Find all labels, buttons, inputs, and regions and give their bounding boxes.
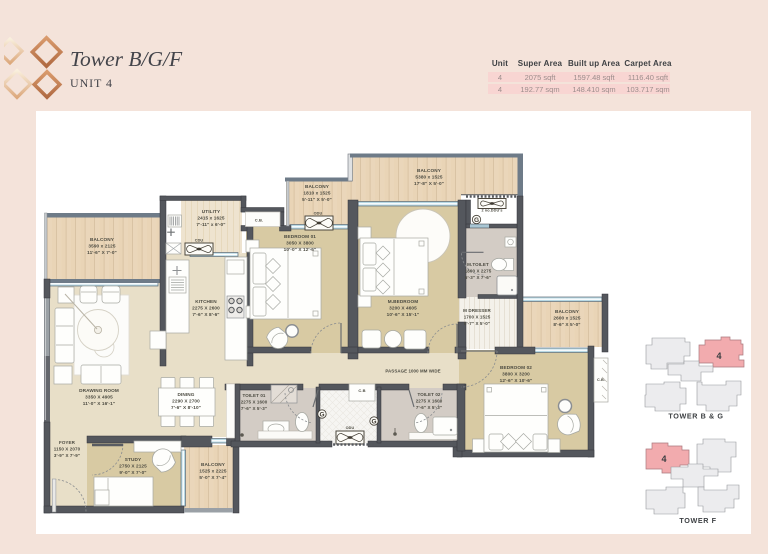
svg-text:ODU: ODU — [346, 426, 355, 430]
svg-text:BEDROOM 013050 X 380010'-0" X: BEDROOM 013050 X 380010'-0" X 12'-6" — [284, 234, 317, 252]
svg-text:CDU: CDU — [195, 239, 204, 243]
svg-text:G: G — [371, 418, 376, 425]
svg-text:TOILET 012275 X 16007'-6" X 5': TOILET 012275 X 16007'-6" X 5'-3" — [241, 393, 268, 411]
svg-text:PASSAGE 1000 MM WIDE: PASSAGE 1000 MM WIDE — [385, 369, 440, 374]
svg-text:BALCONY2600 x 15258'-6" X 5'-0: BALCONY2600 x 15258'-6" X 5'-0" — [553, 309, 581, 327]
svg-text:BALCONY1810 x 15255'-11" X 5'-: BALCONY1810 x 15255'-11" X 5'-0" — [302, 184, 332, 202]
svg-text:TOILET 022275 X 16007'-6" X 5': TOILET 022275 X 16007'-6" X 5'-3" — [416, 392, 443, 410]
svg-text:G: G — [319, 411, 324, 418]
svg-text:BALCONY3590 x 212511'-6" X 7'-: BALCONY3590 x 212511'-6" X 7'-0" — [87, 237, 117, 255]
svg-text:C.B.: C.B. — [597, 378, 605, 382]
svg-text:M.BEDROOM3200 X 460510'-6" X 1: M.BEDROOM3200 X 460510'-6" X 15'-1" — [387, 299, 420, 317]
svg-text:ODU: ODU — [314, 212, 323, 216]
svg-text:2 no.DDU's: 2 no.DDU's — [481, 209, 502, 213]
svg-text:TOWER F: TOWER F — [679, 516, 716, 525]
svg-text:4: 4 — [716, 351, 721, 361]
svg-text:BALCONY1525 x 22255'-0" X 7'-4: BALCONY1525 x 22255'-0" X 7'-4" — [199, 462, 227, 480]
svg-text:4: 4 — [661, 454, 666, 464]
svg-text:TOWER B & G: TOWER B & G — [668, 412, 723, 421]
svg-text:C.B.: C.B. — [255, 218, 263, 223]
svg-text:C.B: C.B — [358, 388, 365, 393]
svg-text:M.TOILET1800 X 22755'-3" X 7'-: M.TOILET1800 X 22755'-3" X 7'-6" — [465, 262, 492, 280]
svg-text:BALCONY5380 x 152517'-8" X 5'-: BALCONY5380 x 152517'-8" X 5'-0" — [414, 168, 444, 186]
svg-text:M DRESSER1700 X 15255'-7" X 5': M DRESSER1700 X 15255'-7" X 5'-0" — [463, 308, 491, 326]
svg-text:BEDROOM 023800 X 320012'-6" X: BEDROOM 023800 X 320012'-6" X 10'-6" — [500, 365, 533, 383]
svg-text:G: G — [474, 217, 479, 224]
svg-text:KITCHEN2275 X 26007'-6" X 8'-6: KITCHEN2275 X 26007'-6" X 8'-6" — [192, 299, 220, 317]
